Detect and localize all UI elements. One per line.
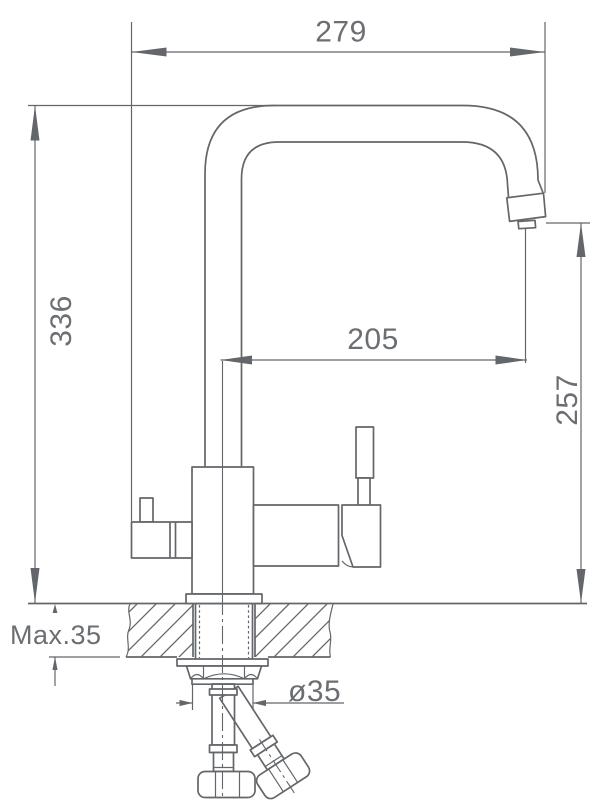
arrowhead-bottom (31, 568, 40, 603)
label-max-counter-thickness: Max.35 (10, 620, 102, 650)
mounting-hex-nut (187, 666, 262, 679)
hose-tube-vertical (214, 753, 234, 772)
arrowhead-left (132, 48, 167, 57)
arrowhead-surface (53, 604, 58, 613)
faucet-dimension-diagram: 279 336 205 257 Max.35 ø35 (0, 0, 600, 800)
base-flange (186, 594, 262, 604)
dimension-279 (132, 22, 546, 521)
label-spout-width: 279 (315, 16, 367, 49)
arrowhead-top (31, 106, 40, 141)
left-handle-block (132, 522, 193, 558)
label-outlet-height: 257 (551, 374, 584, 426)
spout-aerator (518, 220, 536, 228)
faucet (132, 106, 546, 604)
hose-collar-vertical (210, 689, 238, 695)
spout-outer-contour (205, 106, 544, 468)
label-spout-reach: 205 (347, 323, 399, 356)
valve-body (342, 505, 381, 567)
arrowhead-right (510, 48, 545, 57)
arrowhead-right (496, 356, 528, 365)
mounting-shank (196, 604, 253, 659)
right-handle-grip (356, 427, 374, 478)
drawing-root: 279 336 205 257 Max.35 ø35 (10, 16, 590, 800)
spout-nozzle (507, 193, 546, 221)
right-handle-stem (358, 478, 370, 507)
hose-nut-vertical (198, 772, 255, 798)
arrowhead-left-pointing (253, 700, 266, 706)
label-hole-diameter: ø35 (288, 675, 341, 708)
side-arm (254, 505, 339, 566)
technical-drawing-canvas: 279 336 205 257 Max.35 ø35 (0, 0, 600, 800)
arrowhead-right-pointing (180, 700, 193, 706)
arrowhead-top (577, 223, 586, 257)
countertop-hatch-left (126, 604, 193, 657)
arrowhead-up (52, 657, 57, 670)
countertop-hatch-right (255, 604, 333, 657)
label-overall-height: 336 (45, 295, 78, 347)
arrowhead-left (221, 356, 253, 365)
hose-ferrule-vertical (210, 745, 238, 753)
arrowhead-bottom (577, 569, 586, 603)
spout-inner-contour (242, 142, 509, 467)
left-handle-knob (140, 498, 153, 522)
countertop (28, 604, 587, 658)
